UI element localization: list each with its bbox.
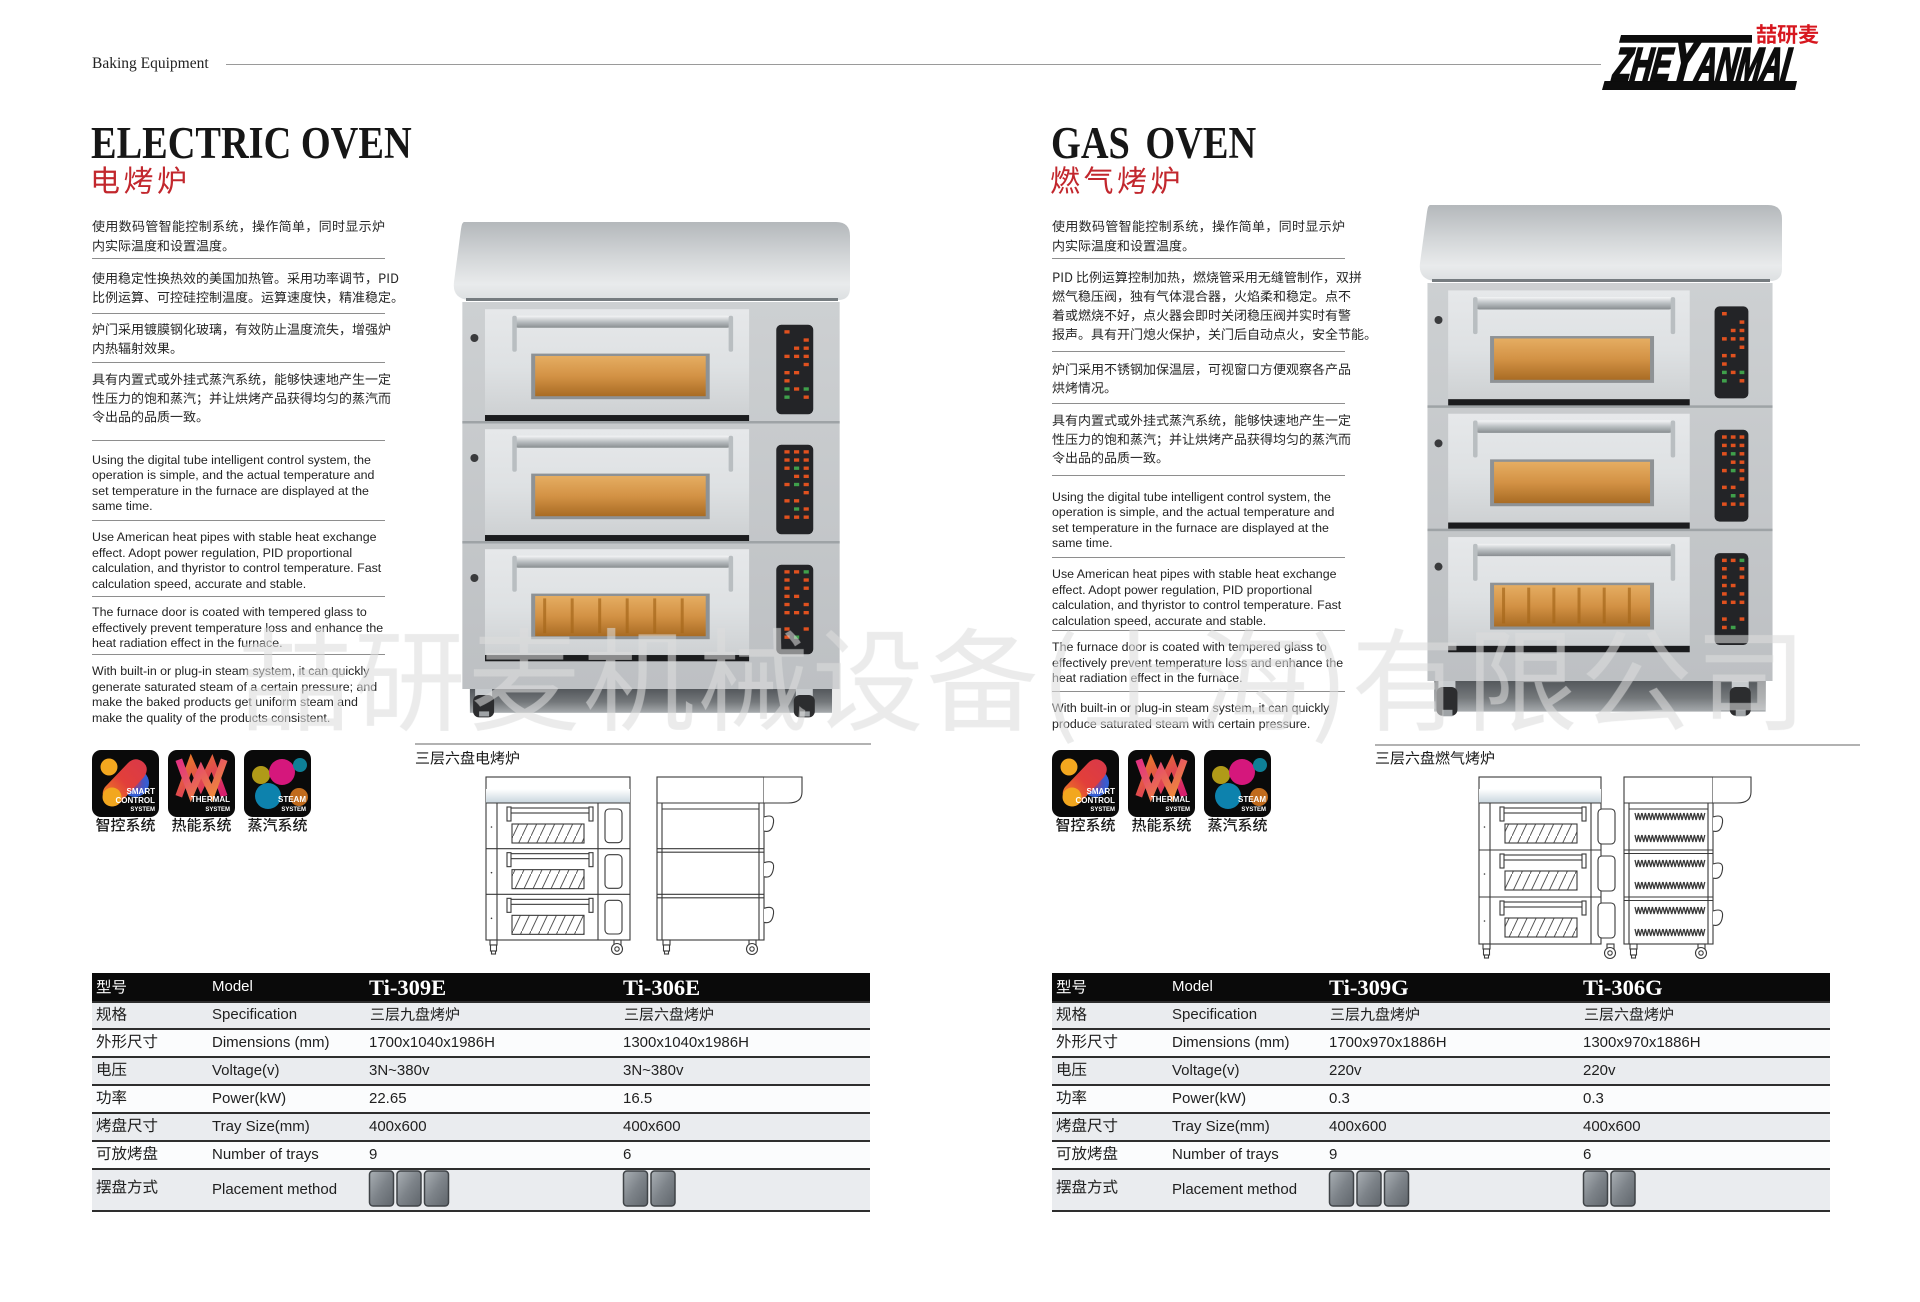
svg-text:SYSTEM: SYSTEM: [1090, 807, 1115, 813]
svg-text:SYSTEM: SYSTEM: [1165, 807, 1190, 813]
svg-text:SMART: SMART: [1087, 787, 1116, 796]
svg-text:STEAM: STEAM: [278, 795, 306, 804]
svg-text:STEAM: STEAM: [1238, 795, 1266, 804]
svg-text:SYSTEM: SYSTEM: [281, 807, 306, 813]
svg-text:THERMAL: THERMAL: [191, 795, 230, 804]
svg-text:THERMAL: THERMAL: [1151, 795, 1190, 804]
svg-text:ZHEYANMAI: ZHEYANMAI: [1609, 24, 1797, 93]
svg-text:CONTROL: CONTROL: [115, 796, 155, 805]
svg-text:CONTROL: CONTROL: [1075, 796, 1115, 805]
svg-text:SYSTEM: SYSTEM: [205, 807, 230, 813]
svg-text:SYSTEM: SYSTEM: [130, 807, 155, 813]
svg-text:SYSTEM: SYSTEM: [1241, 807, 1266, 813]
svg-text:SMART: SMART: [127, 787, 156, 796]
